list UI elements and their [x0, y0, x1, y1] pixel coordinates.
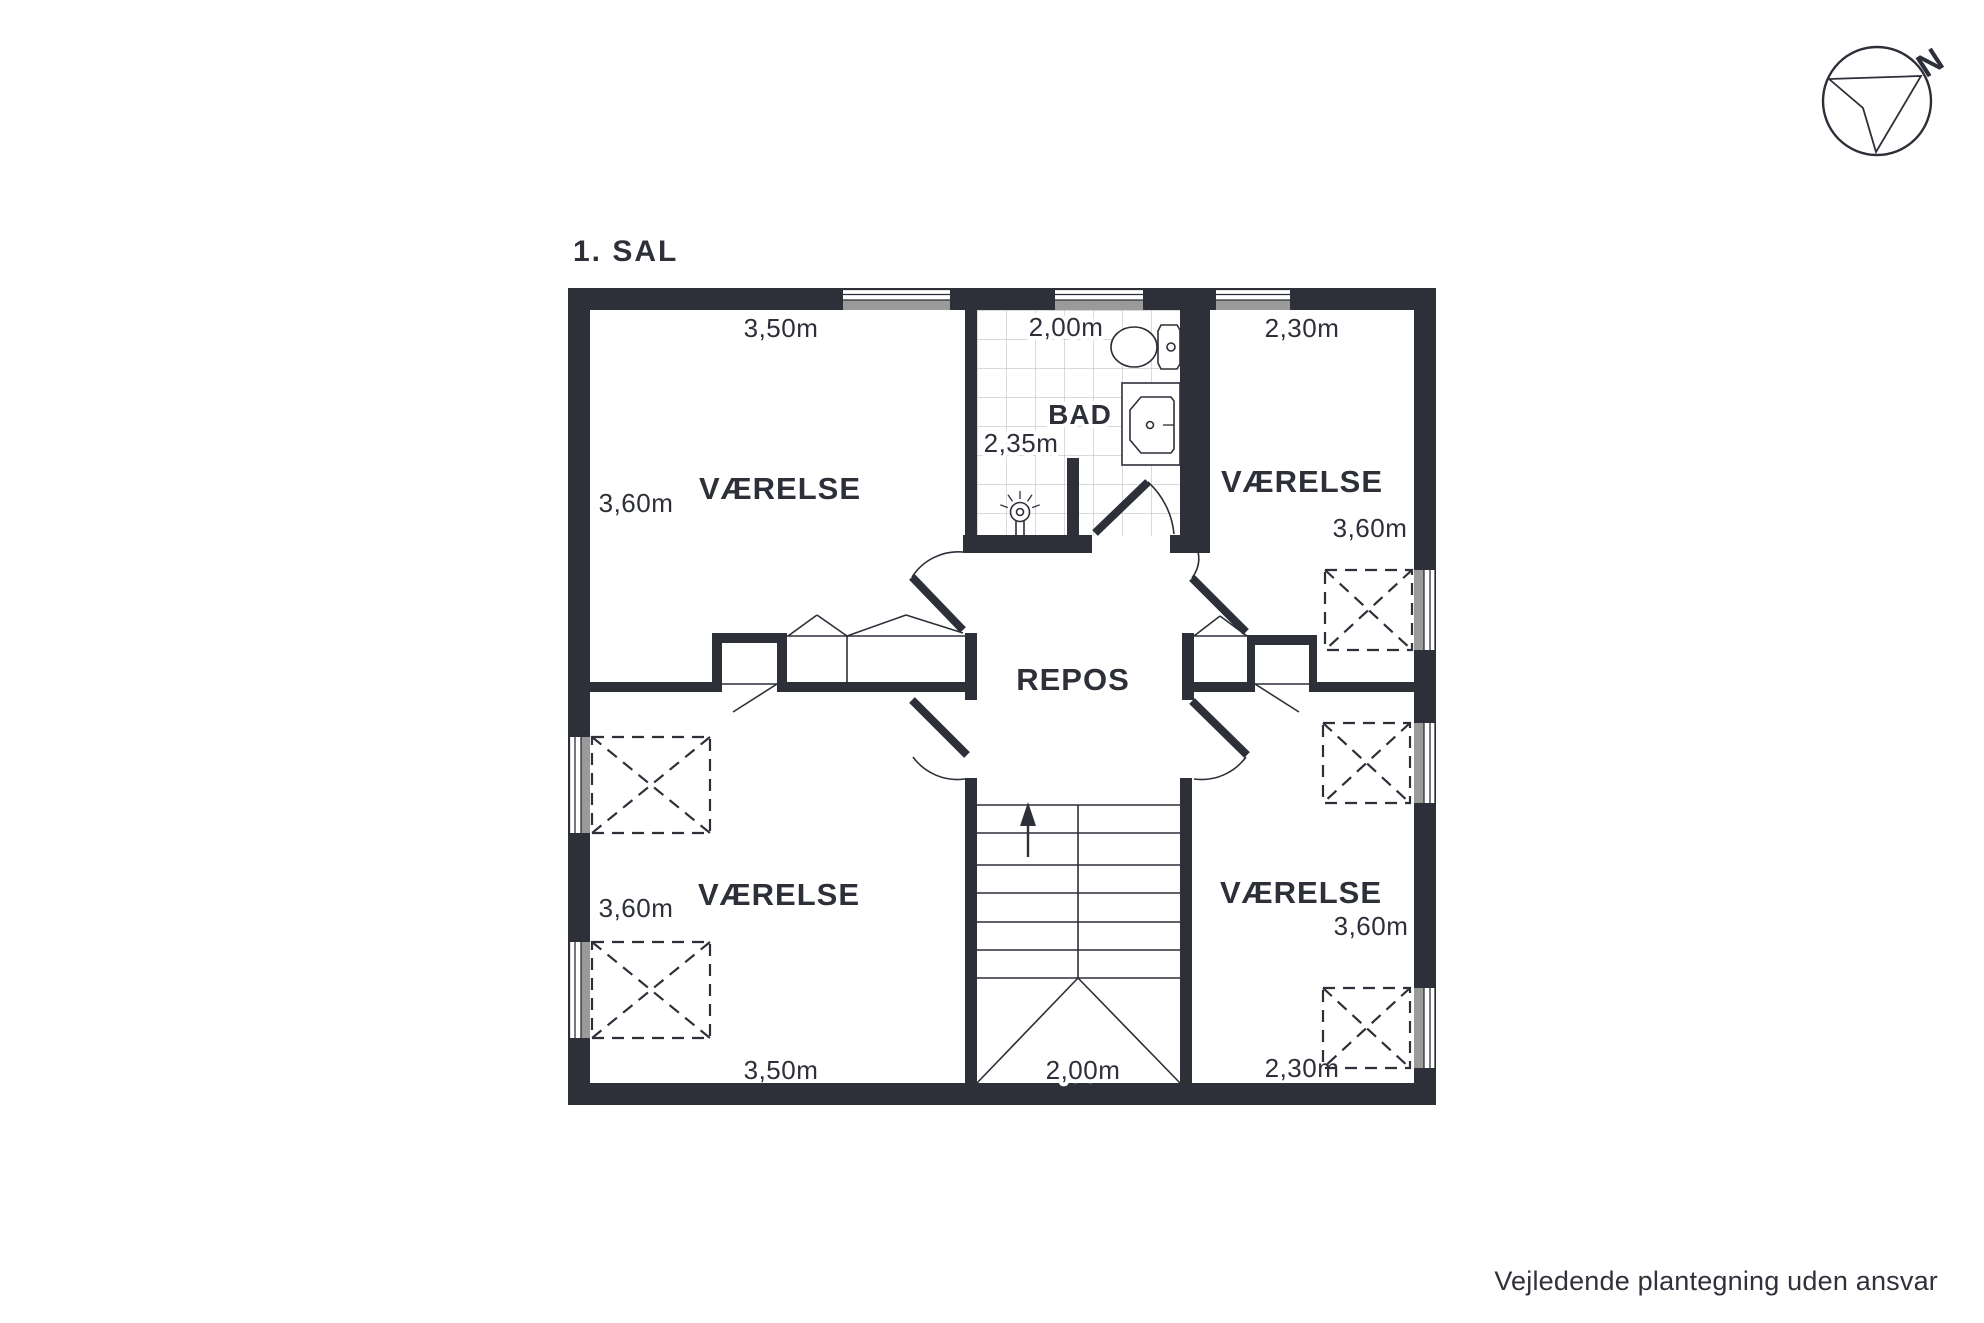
dim-top-right-depth: 3,60m — [1333, 513, 1408, 543]
window-top-right-room-east — [1414, 570, 1435, 650]
room-label-top-left: VÆRELSE — [699, 471, 861, 506]
dim-bathroom-width: 2,00m — [1029, 312, 1104, 342]
window-top-right-room — [1216, 289, 1290, 310]
dim-top-left-depth: 3,60m — [599, 488, 674, 518]
room-label-bottom-left: VÆRELSE — [698, 877, 860, 912]
page-title: 1. SAL — [573, 235, 678, 268]
dim-staircase-width: 2,00m — [1046, 1055, 1121, 1085]
window-top-left-room — [843, 289, 950, 310]
room-label-bathroom: BAD — [1048, 399, 1112, 430]
toilet-icon — [1111, 325, 1180, 369]
window-bathroom — [1055, 289, 1143, 310]
room-label-bottom-right: VÆRELSE — [1220, 875, 1382, 910]
dim-bottom-left-depth: 3,60m — [599, 893, 674, 923]
disclaimer-text: Vejledende plantegning uden ansvar — [1494, 1266, 1938, 1296]
dim-top-left-width: 3,50m — [744, 313, 819, 343]
dim-bathroom-depth: 2,35m — [984, 428, 1059, 458]
room-label-top-right: VÆRELSE — [1221, 464, 1383, 499]
dim-top-right-width: 2,30m — [1265, 313, 1340, 343]
window-bottom-right-room-upper — [1414, 723, 1435, 803]
window-bottom-right-room-lower — [1414, 988, 1435, 1068]
dim-bottom-right-width: 2,30m — [1265, 1053, 1340, 1083]
window-bottom-left-room-lower — [569, 942, 590, 1038]
dim-bottom-right-depth: 3,60m — [1334, 911, 1409, 941]
sink-icon — [1122, 383, 1180, 465]
dim-bottom-left-width: 3,50m — [744, 1055, 819, 1085]
floor-plan-page: 1. SAL 3,50m 3,60m VÆRELSE 2,00m BAD 2,3… — [0, 0, 1984, 1323]
room-label-landing: REPOS — [1016, 662, 1130, 697]
floor-plan-canvas: 1. SAL 3,50m 3,60m VÆRELSE 2,00m BAD 2,3… — [0, 0, 1984, 1323]
background — [0, 0, 1984, 1323]
window-bottom-left-room-upper — [569, 737, 590, 833]
